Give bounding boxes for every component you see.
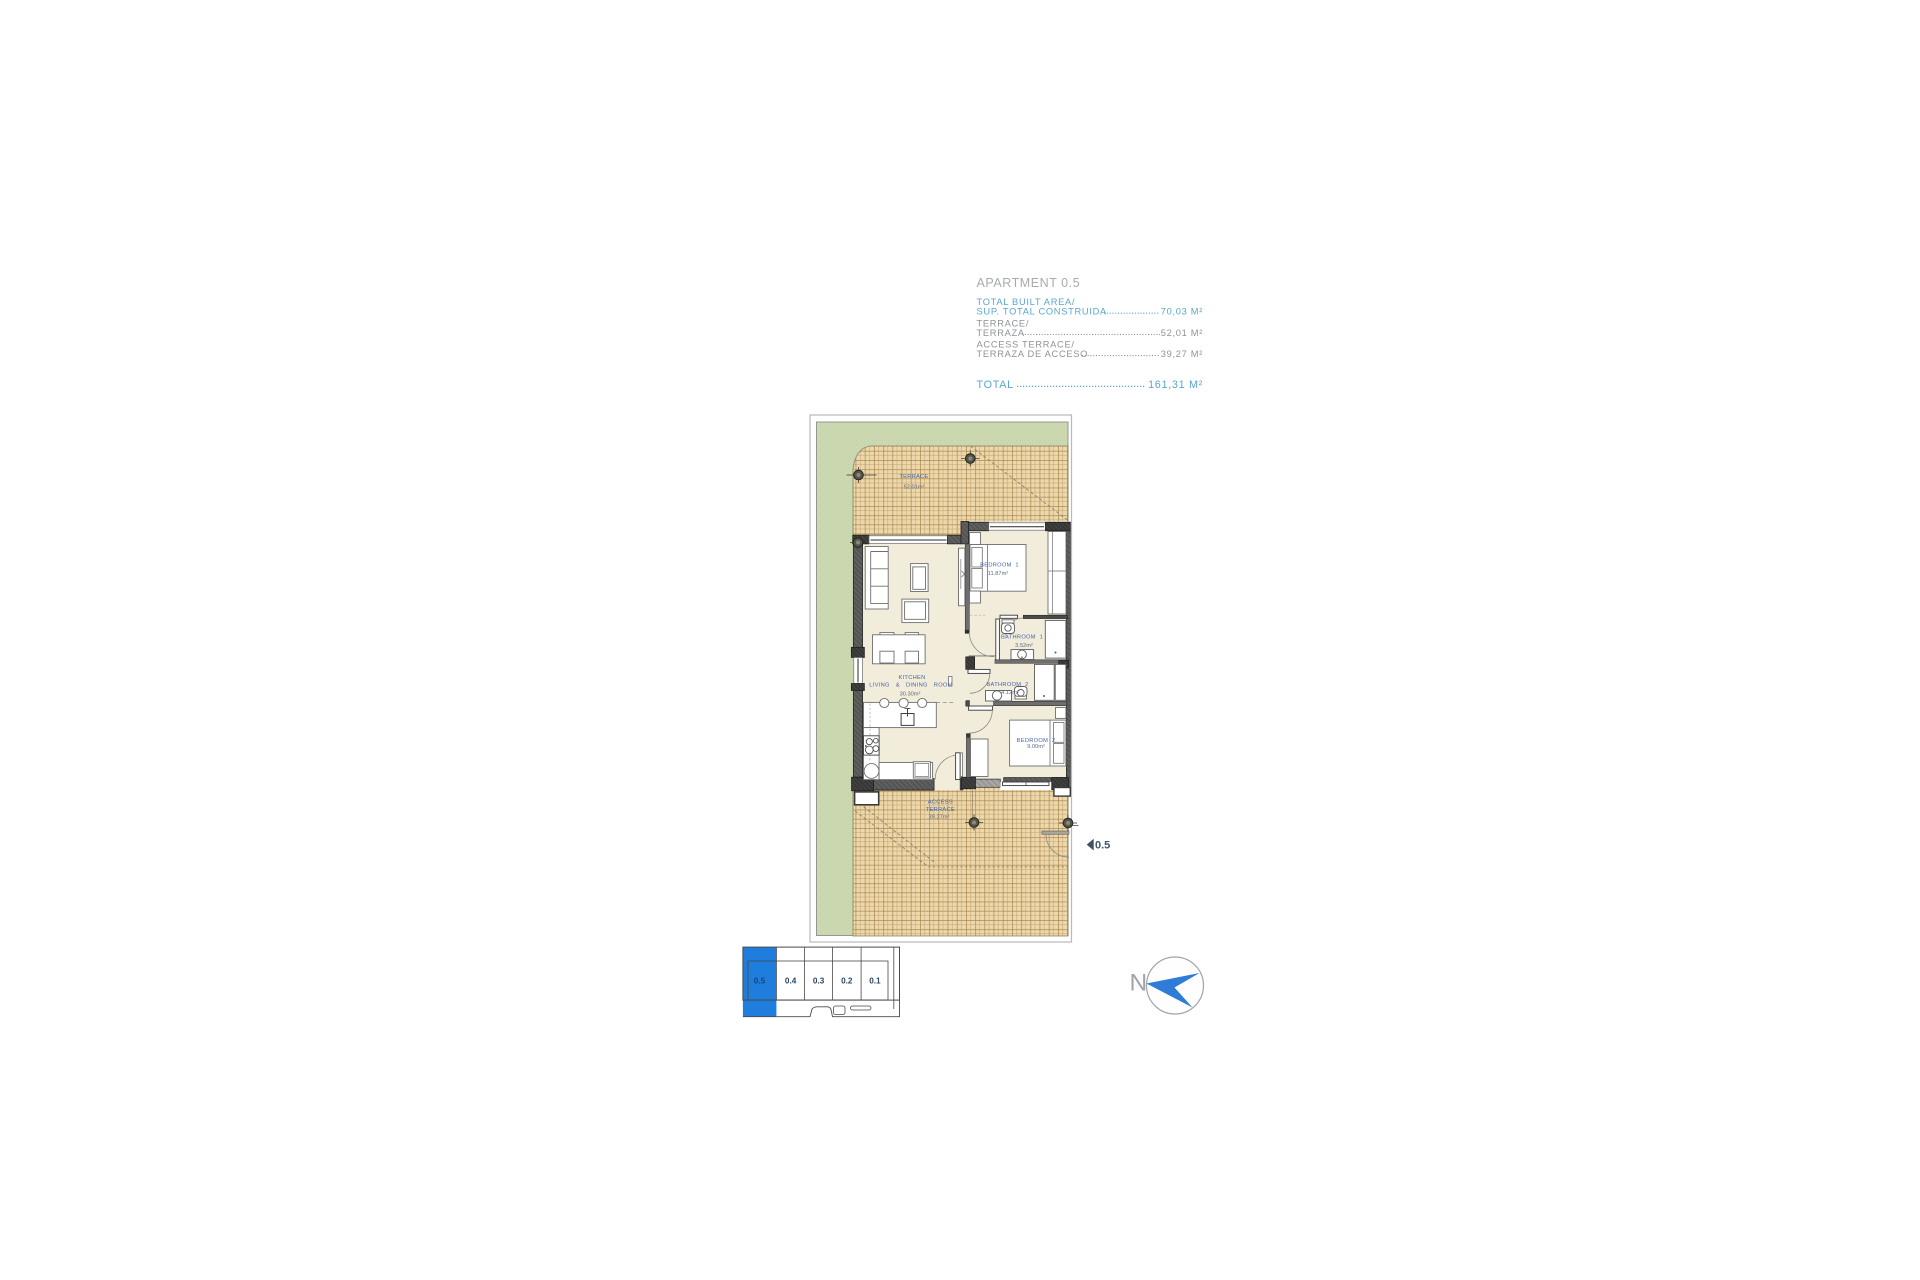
svg-text:3.52m²: 3.52m²: [1015, 643, 1033, 649]
svg-text:0.1: 0.1: [869, 977, 881, 986]
svg-text:39.27m²: 39.27m²: [929, 815, 950, 821]
svg-text:BATHROOM 2: BATHROOM 2: [986, 682, 1028, 688]
svg-text:TOTAL: TOTAL: [977, 379, 1014, 391]
svg-text:4.12m²: 4.12m²: [1001, 690, 1019, 696]
svg-text:TERRAZA DE ACCESO: TERRAZA DE ACCESO: [977, 349, 1089, 359]
svg-text:0.5: 0.5: [754, 977, 766, 986]
svg-text:0.5: 0.5: [1095, 840, 1110, 852]
svg-text:BEDROOM 2: BEDROOM 2: [1017, 738, 1056, 744]
svg-text:APARTMENT 0.5: APARTMENT 0.5: [977, 276, 1081, 290]
svg-text:70,03 M²: 70,03 M²: [1161, 307, 1203, 317]
svg-text:52.01m²: 52.01m²: [904, 484, 925, 490]
svg-text:9.00m²: 9.00m²: [1027, 744, 1045, 750]
svg-text:TERRACE: TERRACE: [899, 474, 928, 480]
svg-text:0.4: 0.4: [785, 977, 797, 986]
svg-text:KITCHEN: KITCHEN: [898, 675, 925, 681]
svg-text:ACCESS: ACCESS: [928, 800, 953, 806]
svg-text:11.87m²: 11.87m²: [988, 571, 1009, 577]
svg-text:39,27 M²: 39,27 M²: [1161, 349, 1203, 359]
svg-text:TERRAZA: TERRAZA: [977, 328, 1025, 338]
svg-text:BATHROOM 1: BATHROOM 1: [1001, 634, 1043, 640]
svg-text:0.3: 0.3: [813, 977, 825, 986]
svg-text:30.30m²: 30.30m²: [900, 691, 921, 697]
svg-text:SUP. TOTAL CONSTRUIDA: SUP. TOTAL CONSTRUIDA: [977, 307, 1108, 317]
svg-text:52,01 M²: 52,01 M²: [1161, 328, 1203, 338]
svg-text:TERRACE: TERRACE: [926, 807, 955, 813]
svg-text:TERRACE/: TERRACE/: [977, 318, 1030, 328]
svg-text:LIVING & DINING ROOM: LIVING & DINING ROOM: [869, 683, 952, 689]
svg-text:161,31 M²: 161,31 M²: [1148, 379, 1203, 391]
svg-text:TOTAL BUILT AREA/: TOTAL BUILT AREA/: [977, 297, 1076, 307]
svg-text:0.2: 0.2: [841, 977, 853, 986]
svg-text:N: N: [1130, 970, 1148, 997]
svg-text:BEDROOM 1: BEDROOM 1: [980, 563, 1019, 569]
